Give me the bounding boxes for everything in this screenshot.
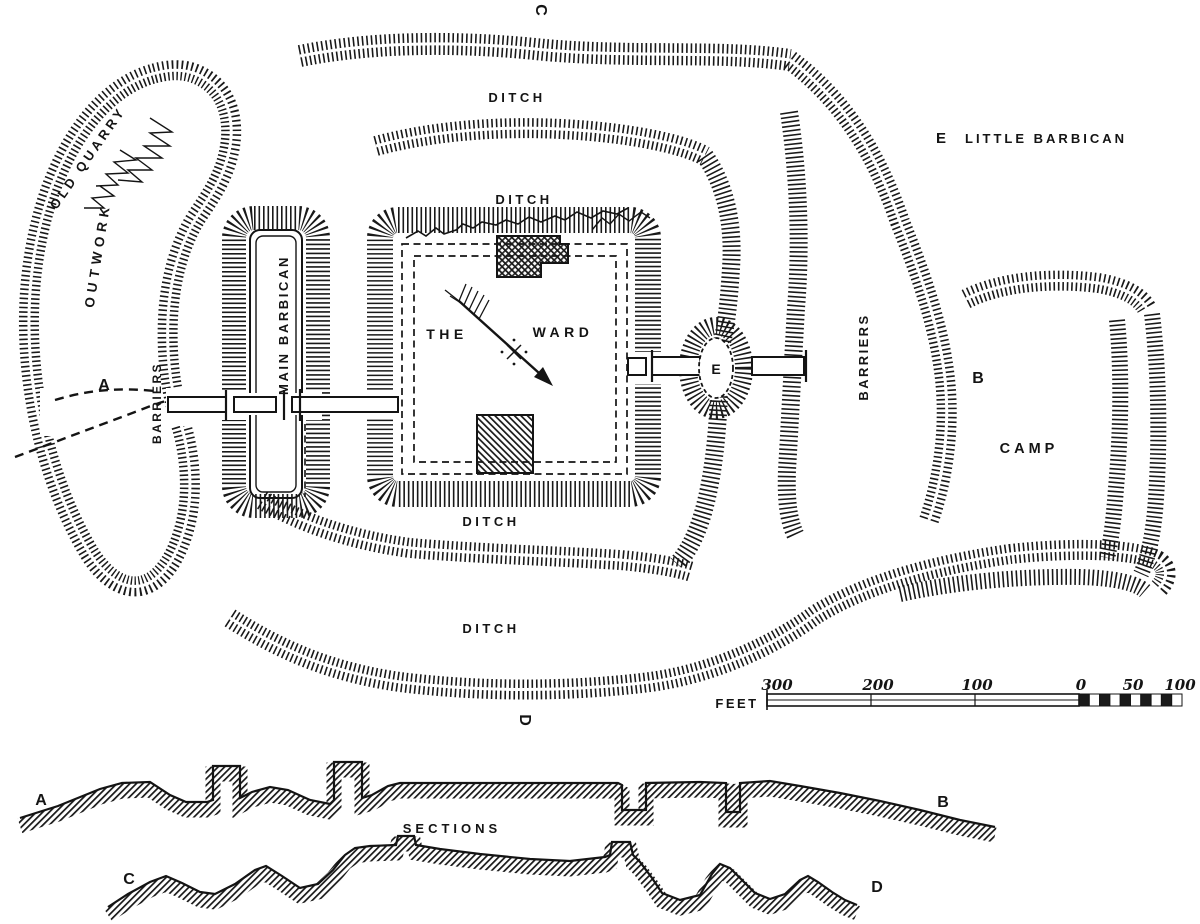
scale-tick-100: 100 (961, 676, 993, 694)
entrance-gaps (40, 352, 664, 436)
camp-east-bank-outer (1141, 314, 1158, 574)
label-e-mound: E (711, 361, 720, 377)
point-label-c: C (532, 4, 549, 16)
northeast-bank (790, 60, 947, 520)
north-inner-bank (376, 128, 705, 156)
scale-tick-0: 0 (1076, 676, 1087, 694)
label-outwork: OUTWORK (82, 201, 113, 308)
section-ab-start-label: A (35, 792, 47, 809)
point-label-d: D (516, 714, 533, 726)
scale-tick-200: 200 (861, 676, 894, 694)
point-label-b: B (972, 370, 984, 387)
point-label-a: A (98, 377, 110, 394)
earthwork-plan-figure: C DITCH DITCH E LITTLE BARBICAN OLD QUAR… (0, 0, 1200, 924)
label-ditch-south-outer: DITCH (462, 621, 519, 636)
section-cd-end-label: D (871, 879, 883, 896)
scale-bar-subdivisions (1079, 694, 1182, 706)
label-the: THE (426, 326, 468, 342)
legend-key: E (936, 130, 946, 147)
section-cd: C D (108, 836, 883, 915)
north-building-crosshatch (497, 236, 568, 277)
camp-north-bank (966, 281, 1147, 309)
scale-tick-100b: 100 (1164, 676, 1196, 694)
scale-unit-label: FEET (715, 696, 758, 711)
east-inner-bank-north-limb (705, 156, 732, 342)
main-barbican-enclosure (244, 230, 306, 498)
east-middle-bank (787, 112, 799, 536)
south-building-footprint (477, 415, 533, 473)
section-ab: A B (20, 762, 995, 835)
section-ab-end-label: B (937, 794, 949, 811)
label-barriers-east: BARRIERS (856, 313, 871, 400)
scale-tick-300: 300 (761, 676, 793, 694)
camp-south-bank (900, 577, 1145, 594)
camp-east-bank-inner (1107, 320, 1120, 558)
sections-title: SECTIONS (403, 821, 501, 836)
legend-label: LITTLE BARBICAN (965, 131, 1127, 146)
label-barriers-west: BARRIERS (150, 362, 164, 444)
label-ward: WARD (533, 324, 594, 340)
section-cd-start-label: C (123, 871, 135, 888)
scale-tick-50: 50 (1123, 676, 1144, 694)
outwork-bank (29, 70, 231, 586)
label-ditch-north-inner: DITCH (495, 192, 552, 207)
label-ditch-south-inner: DITCH (462, 514, 519, 529)
north-outer-bank-crest (300, 44, 790, 60)
east-inner-bank-south-limb (677, 396, 719, 564)
label-camp: CAMP (1000, 441, 1059, 457)
label-ditch-north-outer: DITCH (488, 90, 545, 105)
scale-bar: FEET 300 200 100 0 50 100 (715, 676, 1196, 711)
label-main-barbican: MAIN BARBICAN (276, 255, 291, 395)
plan-canvas: C DITCH DITCH E LITTLE BARBICAN OLD QUAR… (0, 0, 1200, 924)
